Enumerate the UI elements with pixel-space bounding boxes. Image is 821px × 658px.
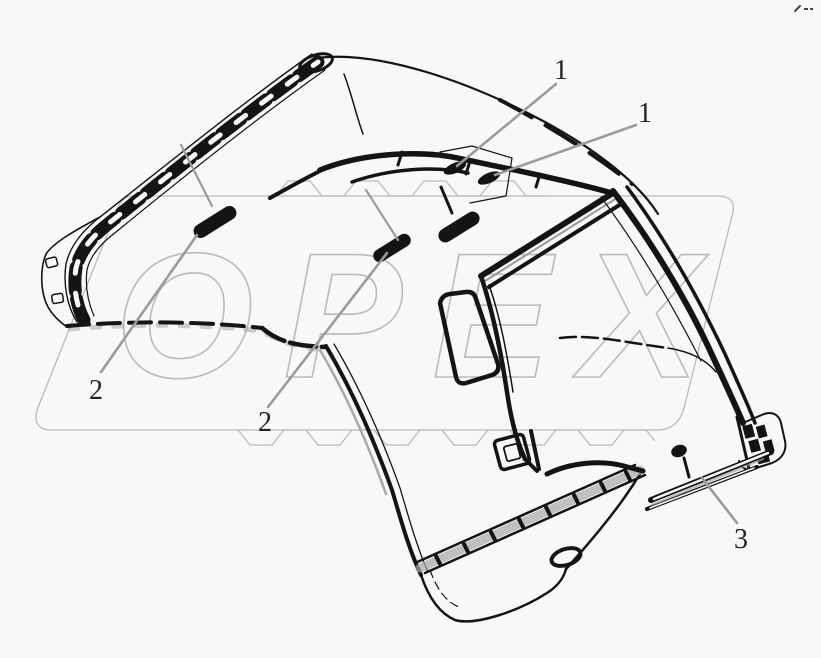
callout-label-3: 3 [734,524,748,555]
door-sill-stub [531,431,539,469]
callout-label-1-right: 1 [638,98,652,129]
strip-upper-hollow [654,453,768,499]
floor-bracket-hole [503,443,520,461]
squiggle-stroke [795,6,800,11]
sill-bottom-line [425,475,645,573]
leader-1-left [457,84,556,166]
corner-squiggle-mark [795,6,813,11]
corner-slat [742,424,755,439]
left-corner-slot [45,257,58,268]
diagram-page: OPEX [0,0,821,658]
sill-top-line [415,465,635,563]
watermark-text: OPEX [115,216,730,415]
watermark-gear-teeth-bottom [238,430,655,445]
corner-slat [748,439,761,453]
callout-label-2-mid: 2 [258,407,272,438]
leader-3 [702,478,737,523]
callout-label-2-left: 2 [89,375,103,406]
seal-pad-pin [441,187,452,213]
callout-label-1-left: 1 [554,55,568,86]
strip-shading [652,459,763,505]
corner-slat [756,425,768,439]
roof-seam [344,74,363,134]
floor-pan [415,431,645,621]
floor-oval-hole [549,545,582,569]
strip-lower-hollow [650,468,754,508]
cab-parts-diagram: OPEX [0,0,821,658]
left-corner-slot [51,293,63,304]
clip-knob-stem [684,458,689,477]
clip-knob [669,443,688,460]
